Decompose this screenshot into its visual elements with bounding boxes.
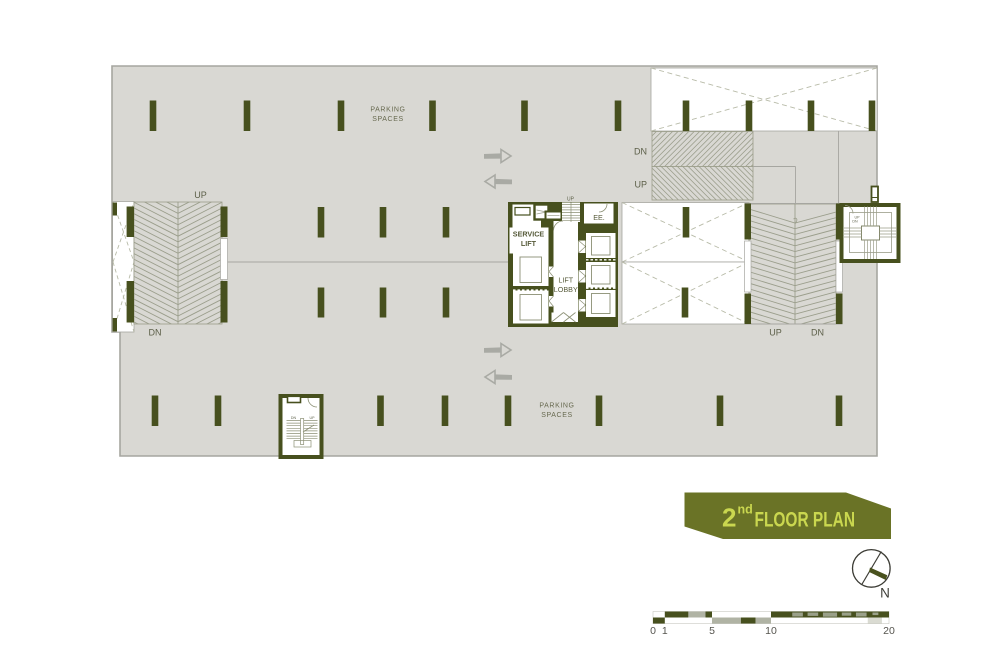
svg-text:N: N (880, 586, 890, 601)
svg-text:LIFT: LIFT (521, 239, 537, 248)
svg-text:UP: UP (310, 416, 316, 420)
svg-text:PARKING: PARKING (370, 107, 405, 114)
svg-text:DN: DN (634, 147, 647, 157)
svg-text:1: 1 (662, 625, 668, 637)
svg-text:20: 20 (883, 625, 895, 637)
svg-text:UP: UP (194, 190, 207, 200)
svg-text:2: 2 (722, 503, 736, 533)
svg-text:SERVICE: SERVICE (513, 230, 545, 239)
svg-text:DN: DN (291, 416, 297, 420)
svg-text:FLOOR PLAN: FLOOR PLAN (755, 508, 856, 532)
svg-text:SPACES: SPACES (541, 412, 572, 419)
svg-text:5: 5 (709, 625, 715, 637)
svg-text:DN: DN (811, 328, 824, 338)
svg-text:nd: nd (738, 503, 753, 517)
svg-text:PARKING: PARKING (539, 403, 574, 410)
svg-text:UP: UP (769, 328, 782, 338)
svg-text:UP: UP (635, 180, 648, 190)
svg-text:EE.: EE. (593, 213, 605, 222)
svg-text:LIFT: LIFT (558, 276, 573, 285)
svg-text:0: 0 (650, 625, 656, 637)
svg-text:LOBBY: LOBBY (554, 285, 578, 294)
svg-text:UP: UP (567, 197, 575, 203)
svg-text:DN: DN (852, 220, 858, 224)
svg-text:10: 10 (765, 625, 777, 637)
svg-text:SPACES: SPACES (372, 116, 403, 123)
svg-text:DN: DN (149, 327, 162, 337)
